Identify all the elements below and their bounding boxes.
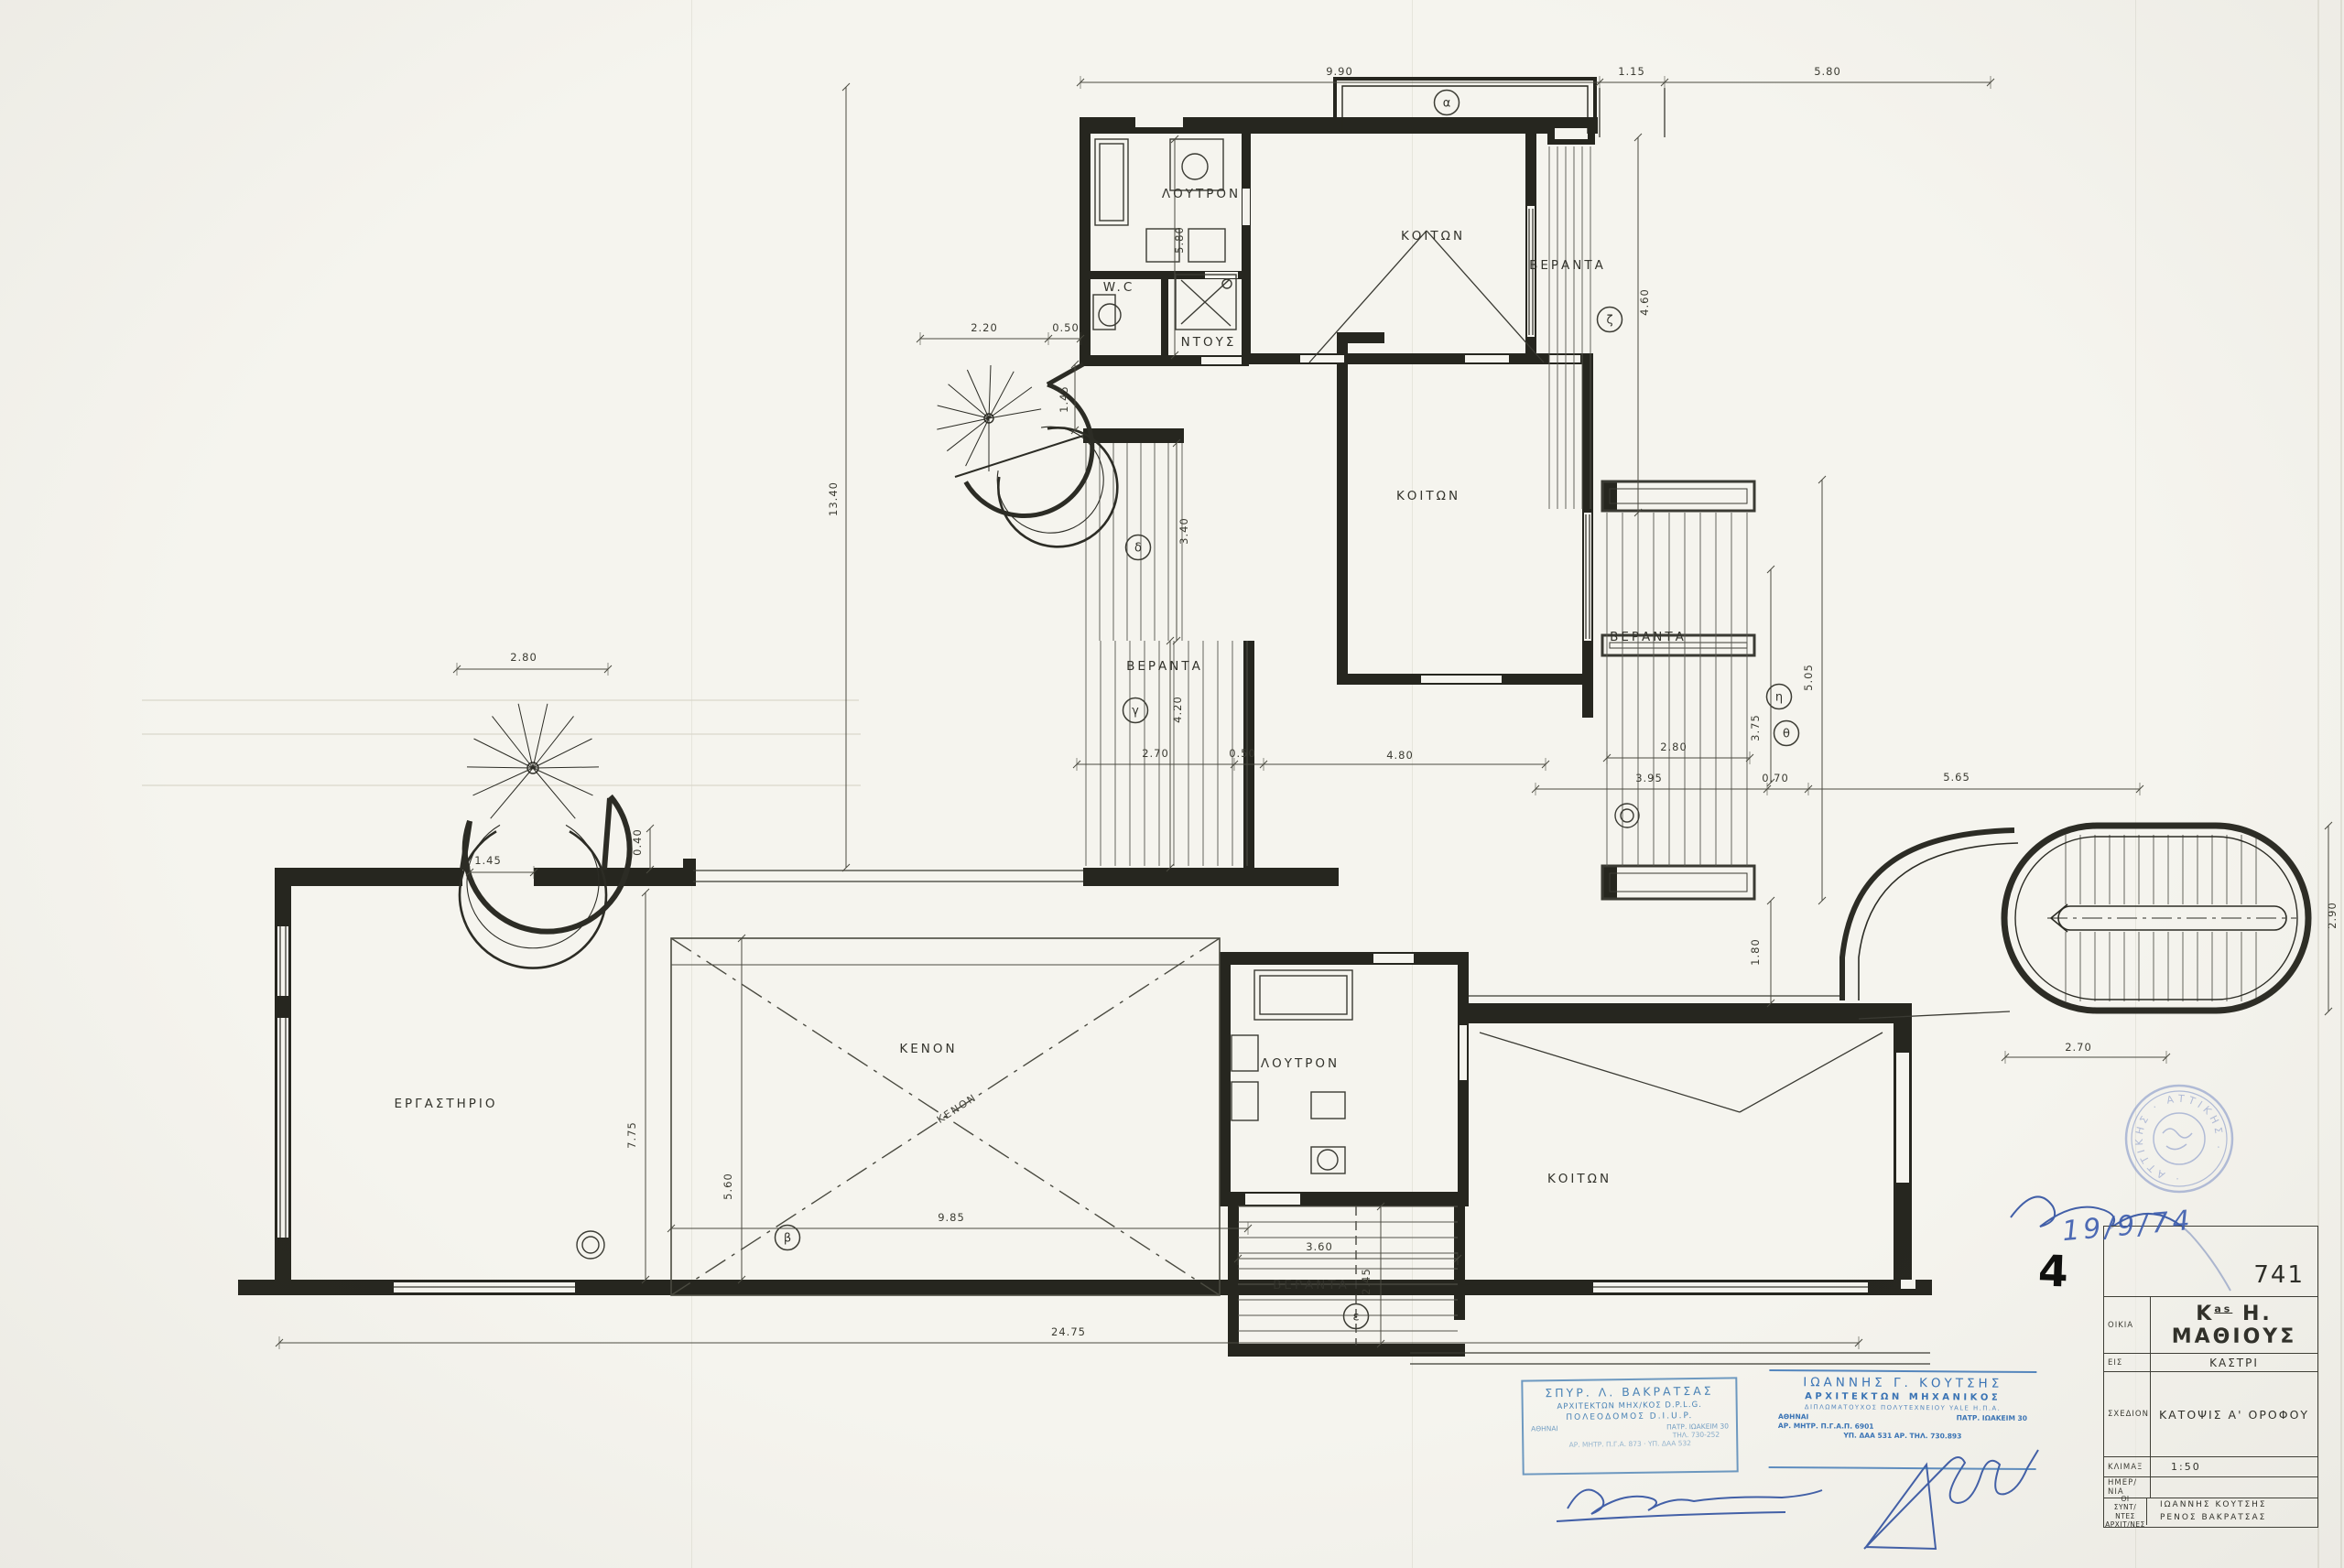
dimension-label: 5.80 [1173, 226, 1186, 254]
dimension-label: 0.50 [1229, 747, 1256, 760]
svg-text:δ: δ [1134, 542, 1142, 556]
room-label: W.C [1103, 280, 1135, 295]
dimension-label: 0.40 [631, 828, 644, 856]
room-labels: ΛΟΥΤΡΟΝW.CΝΤΟΥΣΚΟΙΤΩΝΒΕΡΑΝΤΑΚΟΙΤΩΝΒΕΡΑΝΤ… [394, 187, 1686, 1292]
drawing-title: ΚΑΤΟΨΙΣ Α' ΟΡΟΦΟΥ [2151, 1408, 2317, 1422]
dimension-label: 3.40 [1177, 517, 1190, 545]
area-marker-γ: γ [1123, 698, 1148, 723]
stamp1-title: ΑΡΧΙΤΕΚΤΩΝ ΜΗΧ/ΚΟΣ D.P.L.G. [1524, 1400, 1736, 1411]
stamp2-city: ΑΘΗΝΑΙ [1778, 1412, 1808, 1421]
dimension-label: 1.45 [1058, 385, 1070, 413]
dimension-label: 1.45 [474, 854, 502, 867]
dimension-label: 5.80 [1814, 65, 1841, 78]
authors-names: ΙΩΑΝΝΗΣ ΚΟΥΤΣΗΣ ΡΕΝΟΣ ΒΑΚΡΑΤΣΑΣ [2147, 1499, 2317, 1524]
room-label: ΒΕΡΑΝΤΑ [1529, 258, 1606, 273]
stamp2-title: ΑΡΧΙΤΕΚΤΩΝ ΜΗΧΑΝΙΚΟΣ [1769, 1391, 2036, 1403]
dimension-label: 1.15 [1618, 65, 1645, 78]
title-block: 741 ΟΙΚΙΑ Kas H. ΜΑΘΙΟΥΣ ΕΙΣ ΚΑΣΤΡΙ ΣΧΕΔ… [2103, 1226, 2318, 1528]
room-label: ΚΟΙΤΩΝ [1547, 1172, 1611, 1186]
title-label-oikia: ΟΙΚΙΑ [2104, 1297, 2151, 1353]
room-label: ΚΟΙΤΩΝ [1401, 229, 1465, 243]
room-label: ΛΟΥΤΡΟΝ [1162, 187, 1241, 201]
dimension-label: 7.75 [625, 1121, 638, 1149]
room-label: ΒΕΡΑΝΤΑ [1610, 630, 1687, 644]
dimension-label: 9.90 [1326, 65, 1353, 78]
dimension-label: 13.40 [827, 481, 840, 516]
area-marker-α: α [1435, 91, 1460, 115]
title-label-klimax: ΚΛΙΜΑΞ [2104, 1457, 2151, 1476]
walls [238, 117, 1932, 1357]
bathroom-fixtures [577, 139, 1639, 1259]
location-value: ΚΑΣΤΡΙ [2151, 1357, 2317, 1369]
stamp1-name: ΣΠΥΡ. Λ. ΒΑΚΡΑΤΣΑΣ [1523, 1383, 1735, 1400]
drawing-sheet: ΛΟΥΤΡΟΝW.CΝΤΟΥΣΚΟΙΤΩΝΒΕΡΑΝΤΑΚΟΙΤΩΝΒΕΡΑΝΤ… [0, 0, 2344, 1568]
dimension-label: 5.05 [1802, 664, 1815, 691]
svg-text:θ: θ [1783, 728, 1790, 741]
dimension-label: 3.95 [1635, 772, 1663, 784]
dimension-label: 2.80 [1660, 741, 1687, 753]
room-label: ΛΟΥΤΡΟΝ [1261, 1056, 1340, 1071]
dimension-label: 3.60 [1306, 1240, 1333, 1253]
dimension-label: 9.85 [938, 1211, 965, 1224]
dimension-label: 4.60 [1638, 288, 1651, 316]
dimension-label: 24.75 [1051, 1325, 1086, 1338]
sheet-number: 741 [2253, 1261, 2305, 1289]
dimension-label: 0.70 [1762, 772, 1789, 784]
stamp1-city: ΑΘΗΝΑΙ [1531, 1424, 1558, 1433]
dimension-label: 3.75 [1749, 714, 1762, 741]
dimension-label: 1.80 [1749, 938, 1762, 966]
dimension-lines [276, 76, 2332, 1349]
stamp2-name: ΙΩΑΝΝΗΣ Γ. ΚΟΥΤΣΗΣ [1769, 1375, 2036, 1391]
svg-text:ζ: ζ [1606, 314, 1612, 328]
dimension-label: 5.60 [722, 1173, 734, 1200]
stairs [460, 364, 2308, 1011]
svg-text:β: β [784, 1232, 791, 1246]
dimension-label: 0.50 [1052, 321, 1080, 334]
svg-text:γ: γ [1132, 705, 1139, 719]
svg-text:η: η [1775, 691, 1783, 705]
stamp2-extra: ΥΠ. ΔΑΑ 531 ΑΡ. ΤΗΛ. 730.893 [1769, 1431, 2036, 1441]
stamp-architect-vakratsas: ΣΠΥΡ. Λ. ΒΑΚΡΑΤΣΑΣ ΑΡΧΙΤΕΚΤΩΝ ΜΗΧ/ΚΟΣ D.… [1521, 1377, 1738, 1475]
room-label: ΕΡΓΑΣΤΗΡΙΟ [394, 1097, 497, 1111]
owner-name: Kas H. ΜΑΘΙΟΥΣ [2151, 1303, 2317, 1348]
title-label-eis: ΕΙΣ [2104, 1354, 2151, 1371]
area-marker-ζ: ζ [1598, 308, 1622, 332]
area-markers: αζδγηθβε [776, 91, 1799, 1329]
room-label: ΚΕΝΟΝ [899, 1042, 957, 1056]
authors-label: ΟΙ ΣΥΝΤ/ΝΤΕΣ ΑΡΧΙΤ/ΝΕΣ [2104, 1498, 2147, 1525]
seal-ring-text: · ΑΤΤΙΚΗΣ · ΑΤΤΙΚΗΣ · [2133, 1093, 2225, 1185]
corner-marker: 4 [2037, 1246, 2069, 1297]
dimension-label: 2.90 [2326, 902, 2339, 929]
room-label: ΝΤΟΥΣ [1181, 335, 1237, 350]
dimension-labels: 9.901.155.802.200.505.801.4513.402.801.4… [474, 65, 2339, 1338]
dimension-label: 4.20 [1171, 696, 1184, 723]
room-label: ΒΕΡΑΝΤΑ [1126, 659, 1203, 674]
title-label-sxedion: ΣΧΕΔΙΟΝ [2104, 1372, 2151, 1456]
room-label-diagonal: ΚΕΝΟΝ [935, 1091, 979, 1126]
dimension-label: 2.20 [971, 321, 998, 334]
area-marker-β: β [776, 1226, 800, 1250]
dimension-label: 2.45 [1360, 1268, 1373, 1295]
room-label: ΚΟΙΤΩΝ [1396, 489, 1460, 503]
stamp2-addr: ΠΑΤΡ. ΙΩΑΚΕΙΜ 30 [1957, 1413, 2027, 1422]
dimension-label: 2.70 [2065, 1041, 2092, 1054]
stamp1-reg: ΑΡ. ΜΗΤΡ. Π.Γ.Α. 873 · ΥΠ. ΔΑΑ 532 [1524, 1438, 1736, 1449]
dimension-label: 5.65 [1943, 771, 1970, 784]
svg-text:ε: ε [1352, 1311, 1359, 1325]
dimension-label: 4.80 [1386, 749, 1414, 762]
wall-openings [277, 117, 1915, 1292]
signature-vakratsas [1557, 1490, 1822, 1521]
area-marker-θ: θ [1774, 721, 1799, 746]
area-marker-δ: δ [1126, 535, 1151, 560]
svg-text:α: α [1443, 97, 1451, 111]
deck-planks [1086, 146, 2256, 1331]
floor-plan-drawing: ΛΟΥΤΡΟΝW.CΝΤΟΥΣΚΟΙΤΩΝΒΕΡΑΝΤΑΚΟΙΤΩΝΒΕΡΑΝΤ… [0, 0, 2344, 1568]
room-label: ΒΕΡΑΝΤΑ [1273, 1278, 1350, 1292]
dimension-label: 2.70 [1142, 747, 1169, 760]
stamp-architect-koutsis: ΙΩΑΝΝΗΣ Γ. ΚΟΥΤΣΗΣ ΑΡΧΙΤΕΚΤΩΝ ΜΗΧΑΝΙΚΟΣ … [1769, 1369, 2037, 1470]
dimension-label: 2.80 [510, 651, 537, 664]
scale-value: 1:50 [2151, 1461, 2317, 1473]
round-seal: · ΑΤΤΙΚΗΣ · ΑΤΤΙΚΗΣ · [2126, 1086, 2232, 1192]
